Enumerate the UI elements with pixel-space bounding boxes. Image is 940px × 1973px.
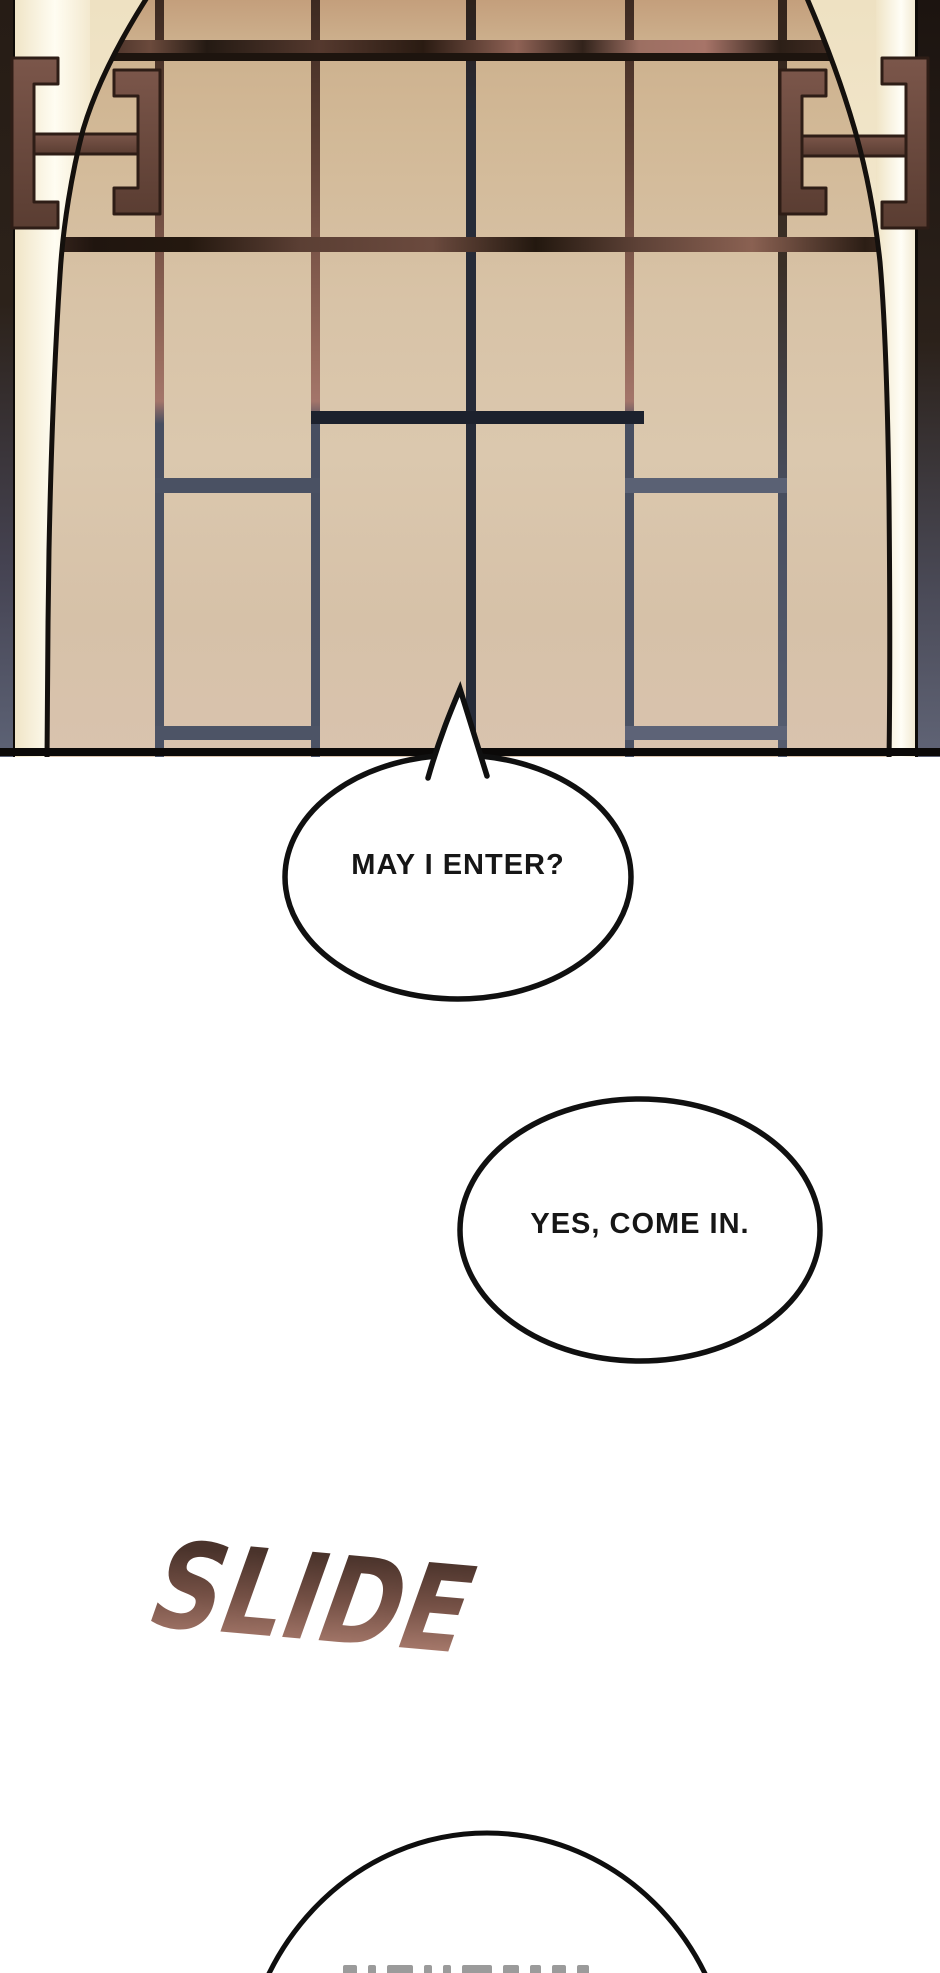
cutoff-letter-mark — [443, 1965, 451, 1973]
door-scene-panel — [0, 0, 940, 757]
sfx-slide-text: SLIDE — [145, 1527, 482, 1673]
cutoff-letter-mark — [387, 1965, 413, 1973]
cutoff-letter-mark — [530, 1965, 541, 1973]
door-outline — [0, 0, 940, 757]
cutoff-letter-mark — [462, 1965, 492, 1973]
sfx-slide: SLIDE — [150, 1498, 590, 1678]
comic-page: MAY I ENTER? YES, COME IN. SLIDE — [0, 0, 940, 1973]
cutoff-letter-mark — [343, 1965, 357, 1973]
speech-bubble-3-partial — [235, 1828, 745, 1973]
cutoff-letter-mark — [552, 1965, 566, 1973]
speech-bubble-1-text: MAY I ENTER? — [280, 845, 636, 885]
cutoff-letter-mark — [368, 1965, 376, 1973]
cutoff-letter-mark — [424, 1965, 432, 1973]
cutoff-text-tops — [343, 1964, 703, 1973]
cutoff-letter-mark — [577, 1965, 589, 1973]
speech-bubble-1 — [270, 668, 650, 1013]
cutoff-letter-mark — [503, 1965, 519, 1973]
speech-bubble-2-text: YES, COME IN. — [455, 1204, 825, 1244]
